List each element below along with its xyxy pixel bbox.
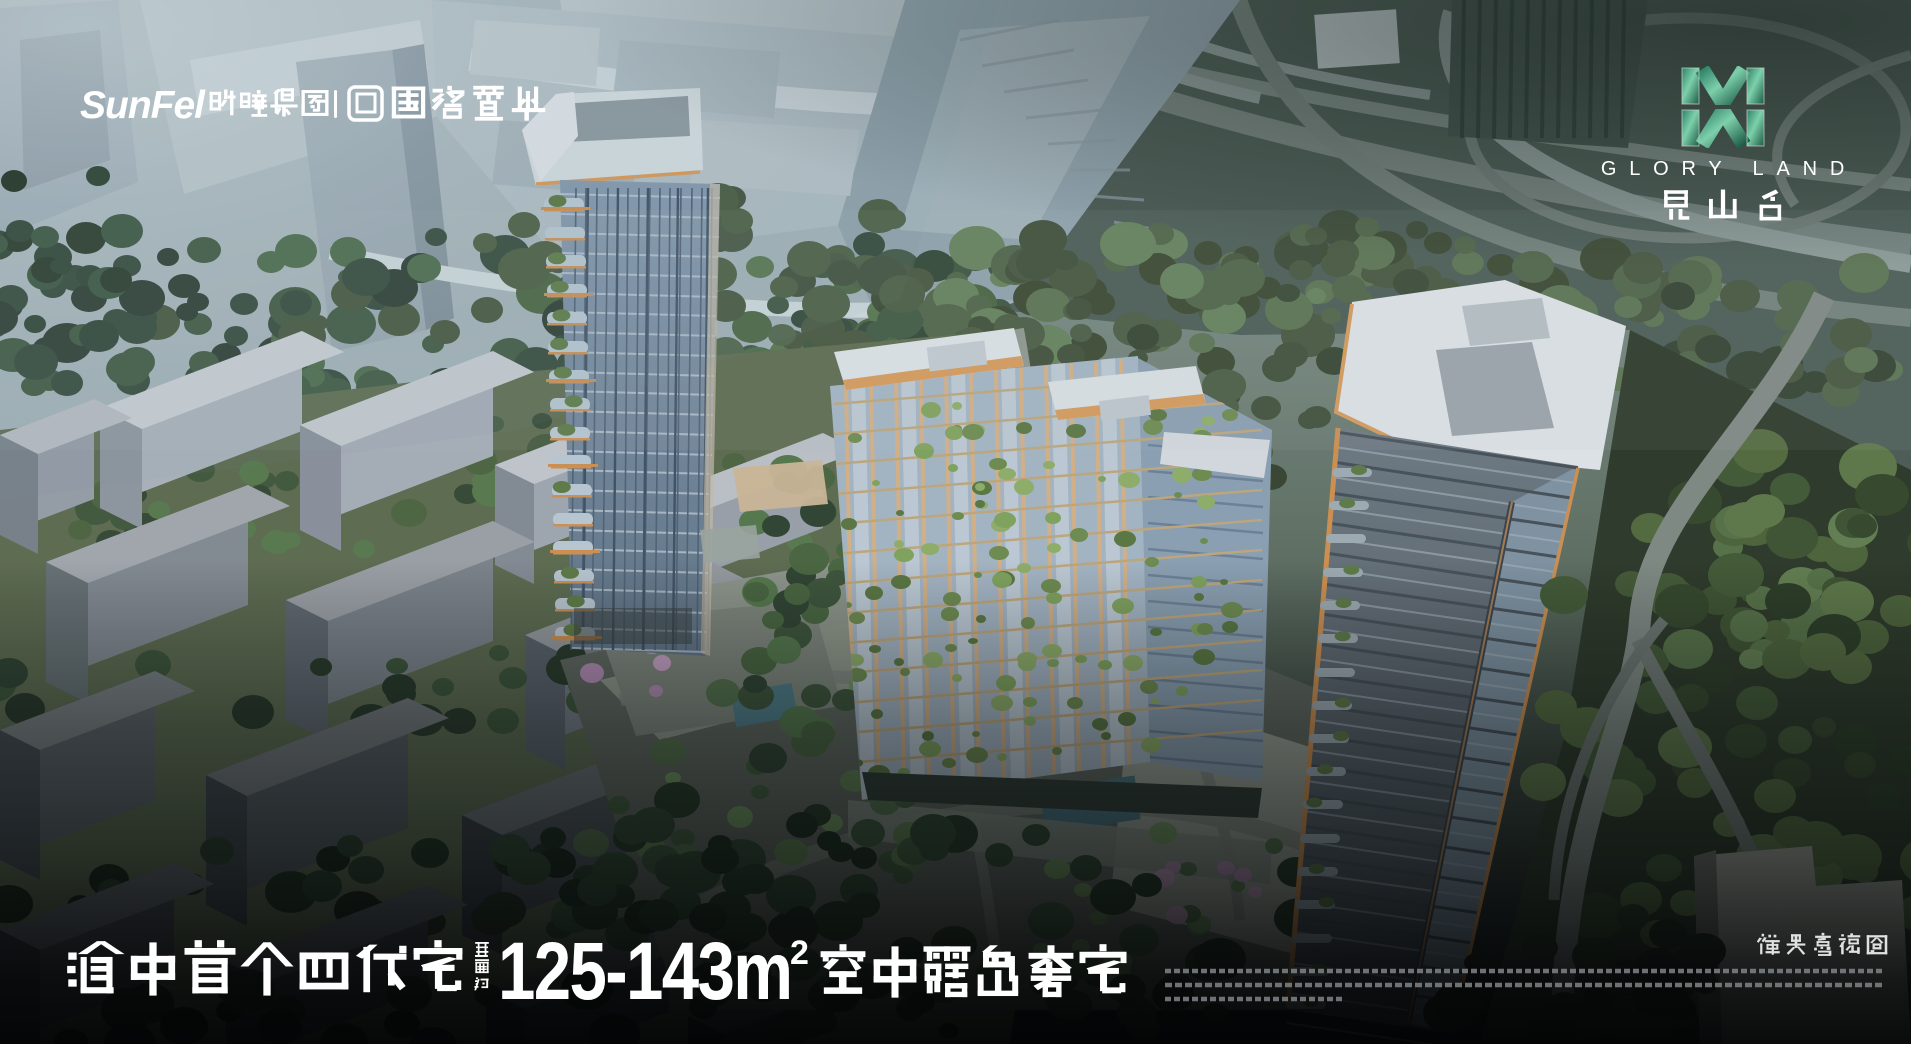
svg-text:SunFel: SunFel bbox=[80, 84, 206, 127]
svg-text:GLORY LAND: GLORY LAND bbox=[1601, 158, 1857, 180]
svg-text:125-143m: 125-143m bbox=[498, 925, 791, 1017]
svg-text:2: 2 bbox=[790, 934, 809, 972]
